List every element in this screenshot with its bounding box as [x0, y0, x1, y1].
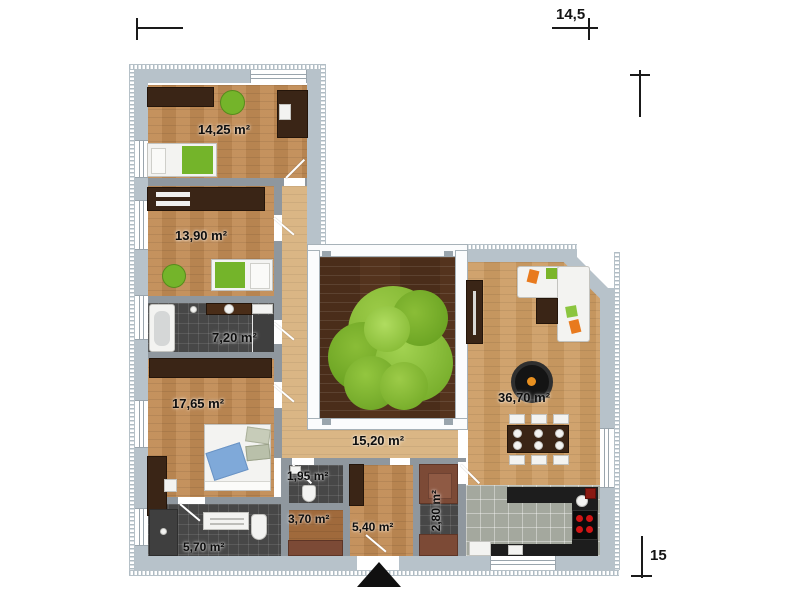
dimension-line — [639, 70, 641, 117]
window — [135, 400, 148, 448]
entrance-arrow-icon — [357, 562, 401, 587]
window — [600, 428, 614, 488]
dining-table — [507, 425, 569, 453]
burner — [576, 515, 583, 522]
cooktop — [572, 510, 598, 540]
pillow — [250, 263, 270, 289]
shower — [149, 509, 178, 556]
dimension-tick — [630, 74, 650, 76]
glass-frame-post — [444, 418, 453, 425]
washbasin-counter — [203, 512, 249, 530]
sink — [224, 304, 234, 314]
interior-wall — [148, 497, 288, 504]
kitchen-counter — [507, 487, 577, 503]
dimension-tick — [588, 18, 590, 40]
flame — [527, 377, 536, 386]
kitchen-counter — [488, 544, 598, 556]
shelf-cabinet — [288, 540, 343, 556]
floor-plan: 14,25 m² 13,90 m² 7,20 m² 17,65 m² 15,20… — [0, 0, 800, 600]
burner — [576, 526, 583, 533]
door-opening — [292, 458, 314, 465]
window — [250, 70, 307, 83]
bed-single — [147, 143, 217, 177]
dimension-line — [641, 536, 643, 578]
dimension-tick — [631, 575, 652, 577]
glass-frame-post — [322, 418, 331, 425]
toilet — [251, 514, 267, 540]
burner — [586, 526, 593, 533]
wardrobe — [349, 464, 364, 506]
dining-chair — [531, 414, 547, 424]
wardrobe — [147, 187, 265, 211]
armchair — [162, 264, 186, 288]
place-setting — [513, 441, 522, 450]
coffee-table — [536, 298, 558, 324]
room-area-label: 1,95 m² — [287, 469, 328, 483]
wardrobe — [147, 87, 214, 107]
dishwasher — [508, 545, 523, 555]
pillow-green — [546, 268, 557, 279]
dimension-width-label: 14,5 — [556, 6, 585, 23]
room-area-label: 5,40 m² — [352, 520, 393, 534]
coffee-machine — [585, 488, 596, 499]
door-opening — [390, 458, 410, 465]
dining-chair — [509, 455, 525, 465]
pillow — [245, 426, 271, 444]
tree — [320, 272, 460, 412]
exterior-wall-right — [600, 288, 614, 556]
tv-cabinet — [466, 280, 483, 344]
place-setting — [513, 429, 522, 438]
exterior-wall-livingroom-top — [455, 250, 577, 262]
dimension-tick — [136, 18, 138, 40]
tv — [164, 479, 177, 492]
bathtub — [149, 304, 175, 352]
bed-footboard — [205, 481, 270, 490]
blanket-green — [182, 146, 213, 174]
desk-chair — [279, 104, 291, 120]
dining-chair — [553, 455, 569, 465]
dimension-height-label: 15 — [650, 547, 667, 564]
place-setting — [534, 429, 543, 438]
bathtub-basin — [154, 311, 170, 346]
counter-line — [210, 523, 244, 525]
room-area-label: 36,70 m² — [498, 390, 550, 405]
toilet — [302, 485, 316, 502]
hatch-band-wing-east — [320, 64, 326, 250]
interior-wall — [289, 503, 343, 510]
exterior-wall-wing-east — [307, 70, 320, 250]
place-setting — [555, 429, 564, 438]
pillow — [151, 148, 166, 174]
pillow — [245, 444, 270, 461]
fridge — [469, 541, 491, 556]
door-opening — [178, 497, 205, 504]
room-area-label: 17,65 m² — [172, 396, 224, 411]
door-opening — [284, 178, 305, 186]
counter-line — [210, 518, 244, 520]
tv-screen — [473, 291, 476, 335]
room-area-label: 3,70 m² — [288, 512, 329, 526]
room-area-label: 13,90 m² — [175, 228, 227, 243]
wardrobe — [149, 358, 272, 378]
dining-chair — [509, 414, 525, 424]
hatch-band-livingroom-top — [455, 244, 577, 250]
dimension-line — [136, 27, 183, 29]
blanket-blue — [205, 442, 248, 481]
room-area-label: 7,20 m² — [212, 330, 257, 345]
dining-chair — [553, 414, 569, 424]
pillow-green — [565, 305, 578, 318]
shelf — [252, 304, 273, 314]
bed-single — [211, 259, 273, 291]
shelf — [156, 192, 190, 197]
hatch-band-right — [614, 252, 620, 570]
pantry-cabinet — [419, 534, 458, 556]
shower-head — [160, 528, 167, 535]
armchair — [220, 90, 245, 115]
dining-chair — [531, 455, 547, 465]
place-setting — [555, 441, 564, 450]
room-area-label: 14,25 m² — [198, 122, 250, 137]
place-setting — [534, 441, 543, 450]
room-area-label: 15,20 m² — [352, 433, 404, 448]
room-area-label: 2,80 m² — [429, 490, 443, 531]
window — [490, 556, 556, 570]
dimension-line — [552, 27, 598, 29]
sink — [190, 306, 197, 313]
interior-wall — [148, 296, 274, 303]
window — [135, 295, 148, 340]
blanket-green — [215, 262, 245, 288]
glass-frame-post — [322, 251, 331, 257]
shelf — [156, 201, 190, 206]
burner — [586, 515, 593, 522]
courtyard-glass-west — [307, 250, 320, 430]
glass-frame-post — [444, 251, 453, 257]
room-area-label: 5,70 m² — [183, 540, 224, 554]
bed-double — [204, 424, 271, 491]
